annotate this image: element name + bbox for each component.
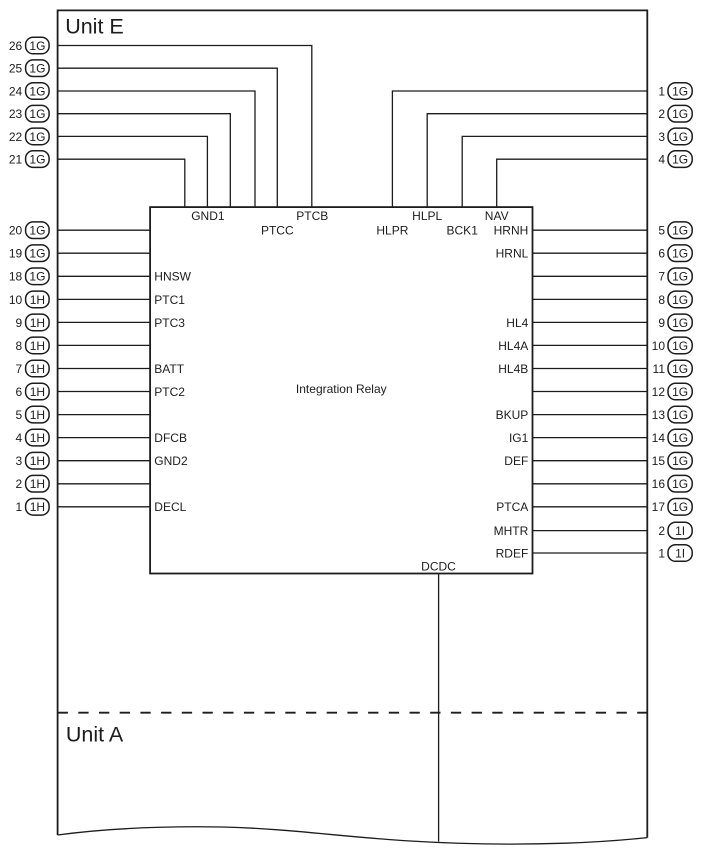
svg-text:Integration Relay: Integration Relay (296, 382, 387, 396)
svg-text:1G: 1G (29, 39, 45, 53)
svg-text:PTCC: PTCC (261, 223, 294, 237)
svg-text:PTCA: PTCA (496, 500, 528, 514)
svg-text:BCK1: BCK1 (447, 223, 479, 237)
svg-text:1G: 1G (29, 224, 45, 238)
svg-text:13: 13 (652, 408, 666, 422)
svg-text:HRNH: HRNH (494, 224, 529, 238)
svg-text:1G: 1G (672, 362, 688, 376)
svg-text:RDEF: RDEF (496, 546, 529, 560)
svg-text:2: 2 (658, 524, 665, 538)
svg-text:IG1: IG1 (509, 431, 529, 445)
svg-text:BKUP: BKUP (496, 408, 529, 422)
svg-text:1G: 1G (29, 107, 45, 121)
svg-text:DFCB: DFCB (154, 431, 187, 445)
svg-text:1H: 1H (30, 408, 45, 422)
svg-text:10: 10 (652, 339, 666, 353)
svg-text:1G: 1G (672, 431, 688, 445)
svg-text:15: 15 (652, 454, 666, 468)
svg-text:1H: 1H (30, 454, 45, 468)
svg-text:1G: 1G (672, 107, 688, 121)
svg-text:14: 14 (652, 431, 666, 445)
svg-text:1G: 1G (672, 408, 688, 422)
svg-text:6: 6 (16, 385, 23, 399)
svg-text:1G: 1G (29, 130, 45, 144)
svg-text:PTCB: PTCB (296, 209, 328, 223)
svg-text:1H: 1H (30, 316, 45, 330)
svg-text:Unit A: Unit A (66, 723, 124, 747)
svg-text:26: 26 (9, 39, 23, 53)
svg-text:1: 1 (16, 500, 23, 514)
svg-text:6: 6 (658, 247, 665, 261)
svg-text:23: 23 (9, 107, 23, 121)
svg-text:12: 12 (652, 385, 666, 399)
svg-text:1: 1 (658, 84, 665, 98)
svg-text:1G: 1G (672, 454, 688, 468)
svg-text:2: 2 (16, 477, 23, 491)
svg-text:2: 2 (658, 107, 665, 121)
svg-text:1G: 1G (672, 153, 688, 167)
svg-text:1H: 1H (30, 293, 45, 307)
svg-text:HRNL: HRNL (496, 247, 529, 261)
svg-text:1H: 1H (30, 362, 45, 376)
svg-text:18: 18 (9, 270, 23, 284)
svg-text:DCDC: DCDC (421, 560, 456, 574)
svg-text:3: 3 (16, 454, 23, 468)
svg-text:1G: 1G (29, 270, 45, 284)
svg-text:1G: 1G (672, 84, 688, 98)
svg-text:7: 7 (658, 270, 665, 284)
svg-text:HLPL: HLPL (412, 209, 442, 223)
svg-text:1G: 1G (672, 130, 688, 144)
svg-text:22: 22 (9, 130, 23, 144)
svg-text:PTC2: PTC2 (154, 385, 185, 399)
svg-text:9: 9 (658, 316, 665, 330)
svg-text:20: 20 (9, 224, 23, 238)
svg-text:1G: 1G (29, 247, 45, 261)
svg-text:BATT: BATT (154, 362, 184, 376)
svg-text:DEF: DEF (504, 454, 528, 468)
svg-text:HL4: HL4 (506, 316, 528, 330)
svg-text:GND2: GND2 (154, 454, 188, 468)
svg-text:11: 11 (653, 362, 666, 376)
svg-text:10: 10 (9, 293, 23, 307)
svg-text:1G: 1G (672, 224, 688, 238)
svg-text:1H: 1H (30, 500, 45, 514)
svg-text:1G: 1G (29, 84, 45, 98)
svg-text:1: 1 (658, 546, 665, 560)
svg-text:1G: 1G (29, 62, 45, 76)
svg-text:4: 4 (16, 431, 23, 445)
svg-text:1H: 1H (30, 477, 45, 491)
svg-text:8: 8 (16, 339, 23, 353)
svg-text:1G: 1G (672, 270, 688, 284)
svg-text:19: 19 (9, 247, 23, 261)
svg-text:1G: 1G (672, 339, 688, 353)
svg-text:HL4A: HL4A (498, 339, 528, 353)
svg-text:MHTR: MHTR (494, 524, 529, 538)
svg-text:1G: 1G (672, 247, 688, 261)
svg-text:PTC1: PTC1 (154, 293, 185, 307)
svg-text:1G: 1G (672, 500, 688, 514)
svg-text:7: 7 (16, 362, 23, 376)
svg-text:5: 5 (658, 224, 665, 238)
svg-text:25: 25 (9, 62, 23, 76)
svg-text:NAV: NAV (485, 209, 509, 223)
svg-text:Unit E: Unit E (65, 14, 124, 38)
svg-text:1I: 1I (675, 546, 685, 560)
svg-text:1H: 1H (30, 385, 45, 399)
svg-text:HNSW: HNSW (154, 270, 191, 284)
svg-text:GND1: GND1 (191, 209, 225, 223)
svg-text:8: 8 (658, 293, 665, 307)
svg-text:5: 5 (16, 408, 23, 422)
svg-text:17: 17 (652, 500, 666, 514)
svg-text:9: 9 (16, 316, 23, 330)
svg-text:1H: 1H (30, 339, 45, 353)
svg-text:DECL: DECL (154, 500, 186, 514)
svg-text:1G: 1G (672, 293, 688, 307)
svg-text:4: 4 (658, 153, 665, 167)
svg-text:1G: 1G (672, 316, 688, 330)
svg-text:1G: 1G (29, 153, 45, 167)
svg-text:16: 16 (652, 477, 666, 491)
svg-text:HL4B: HL4B (498, 362, 528, 376)
svg-text:1G: 1G (672, 477, 688, 491)
svg-text:21: 21 (9, 153, 23, 167)
svg-text:24: 24 (9, 84, 23, 98)
svg-text:1I: 1I (675, 524, 685, 538)
svg-text:PTC3: PTC3 (154, 316, 185, 330)
svg-text:1H: 1H (30, 431, 45, 445)
svg-text:HLPR: HLPR (376, 223, 408, 237)
svg-text:3: 3 (658, 130, 665, 144)
svg-text:1G: 1G (672, 385, 688, 399)
